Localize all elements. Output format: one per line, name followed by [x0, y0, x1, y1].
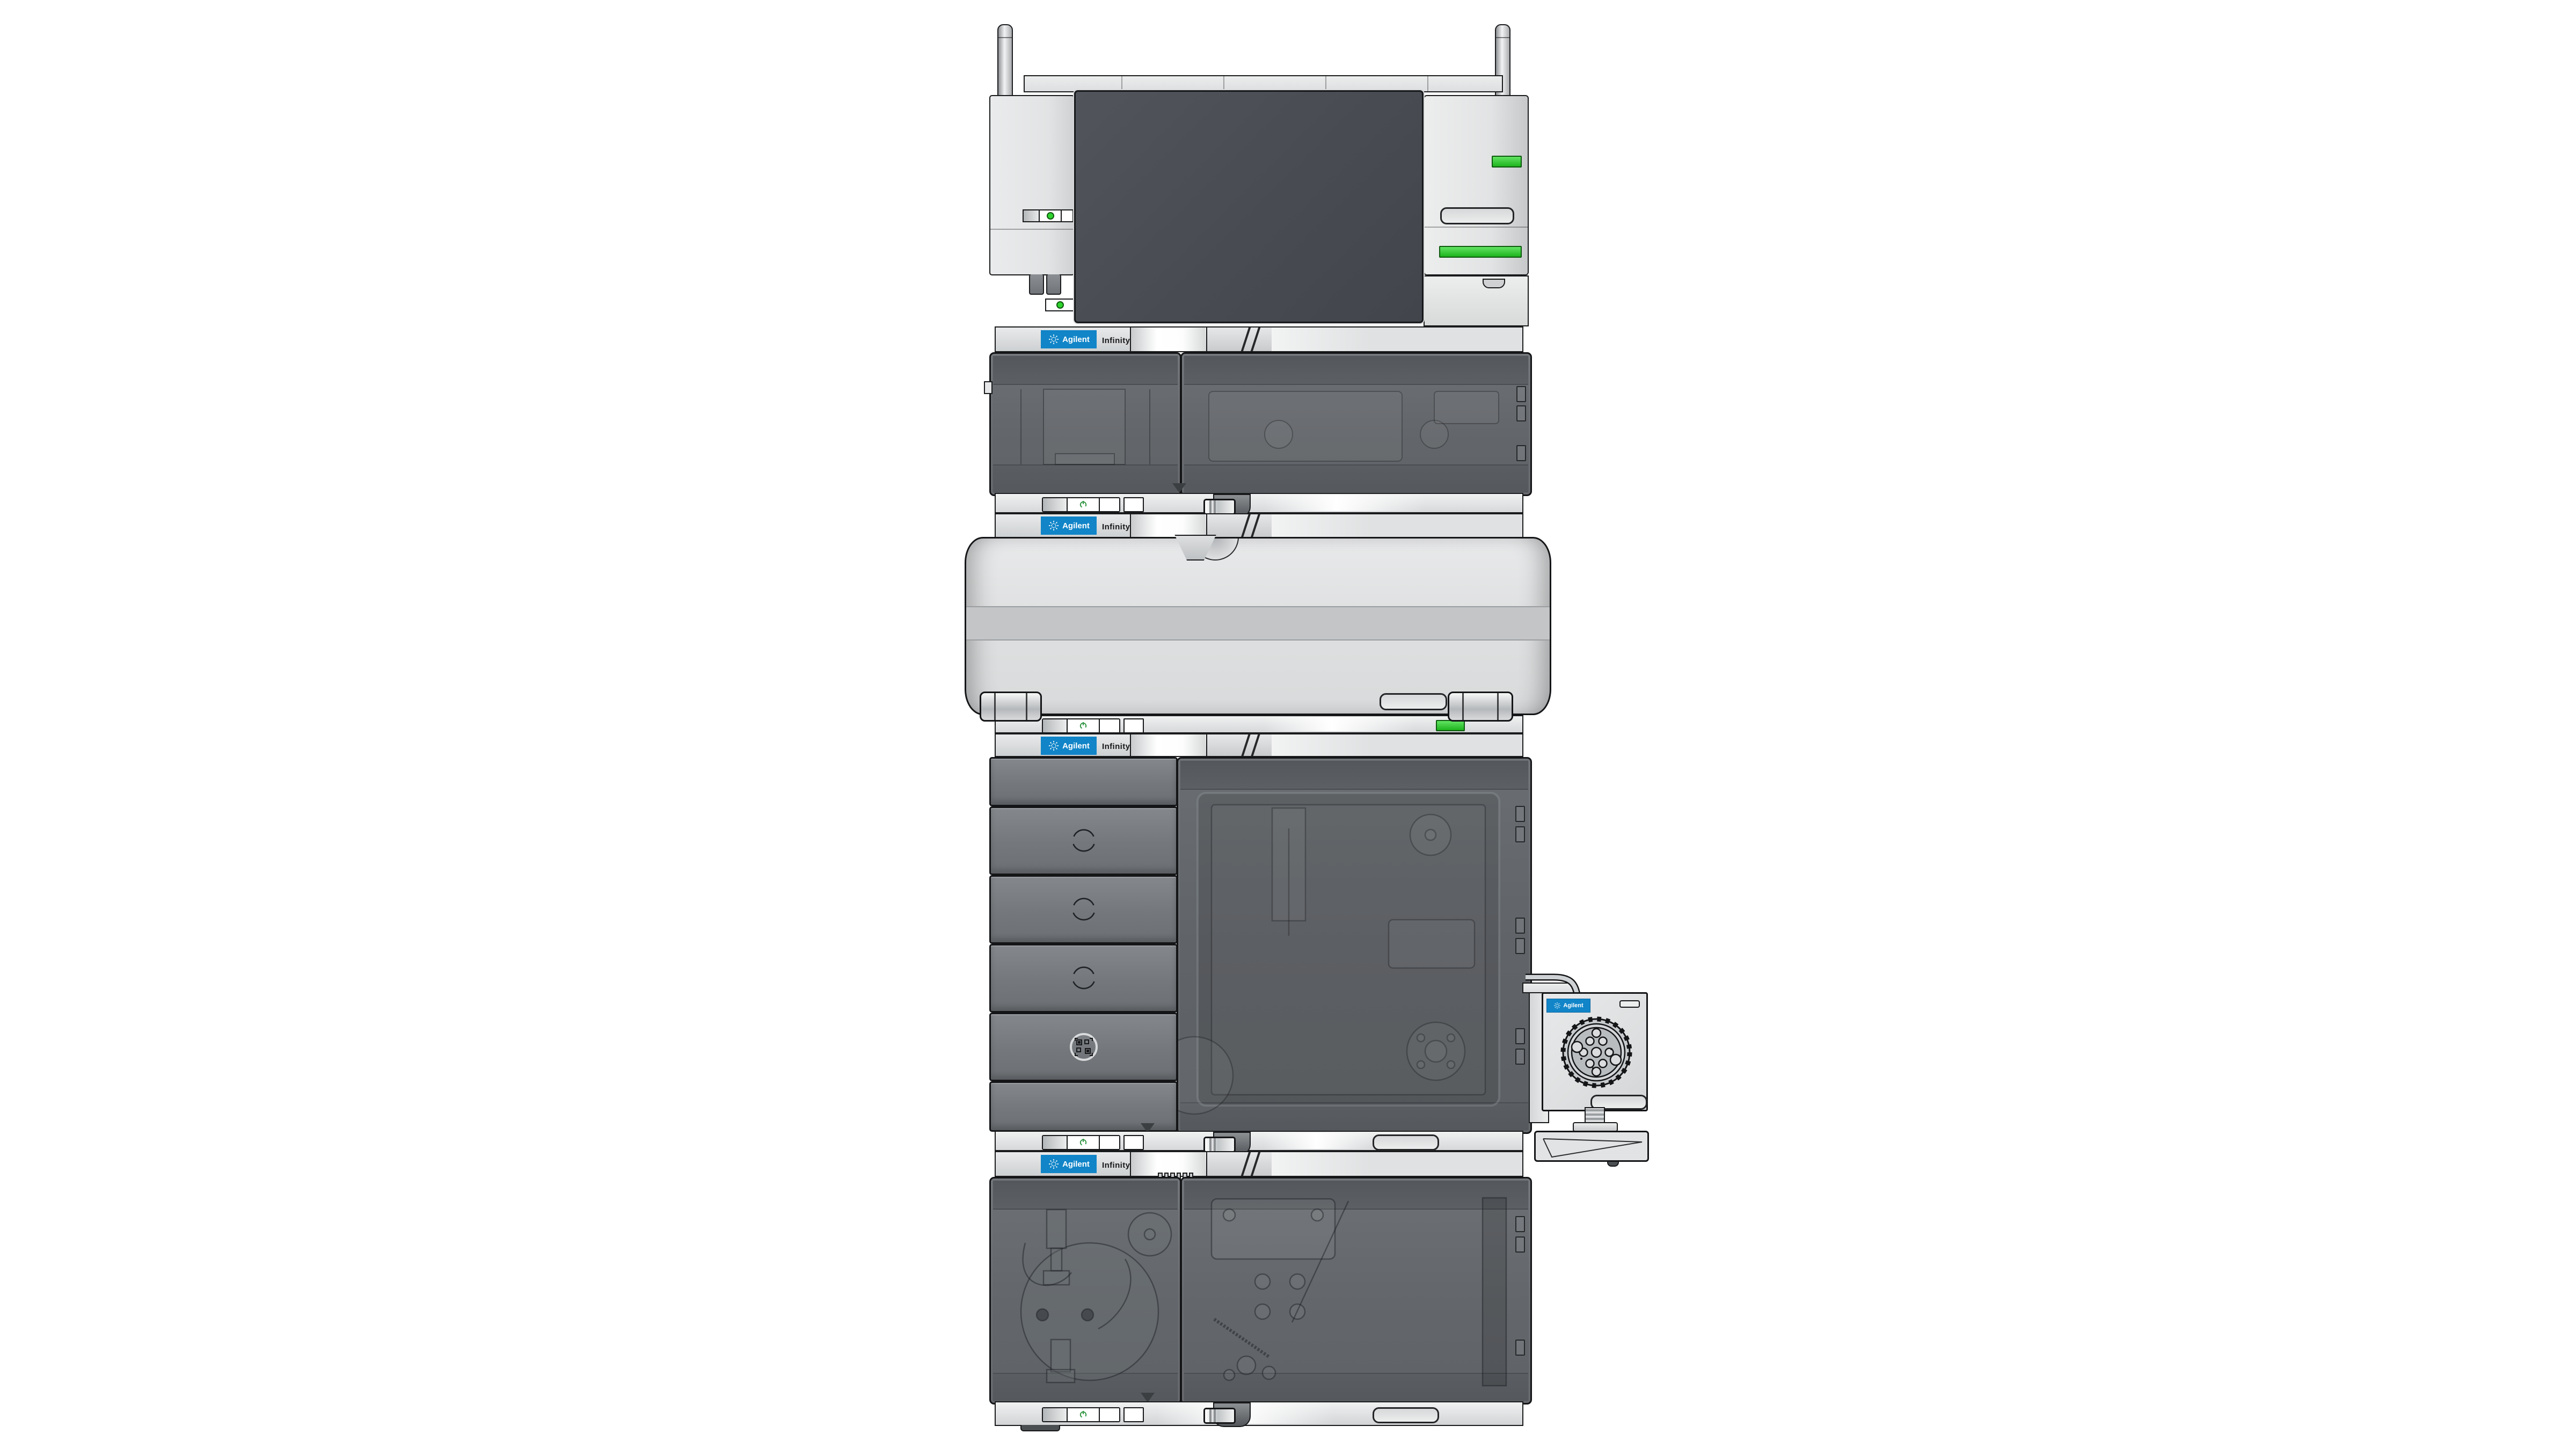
recessed-slot [1380, 693, 1447, 710]
valve-module-body: Agilent [1542, 992, 1648, 1111]
agilent-badge: Agilent [1041, 516, 1097, 535]
sampler-module [989, 757, 1529, 1131]
brand-label: Agilent [1062, 1160, 1090, 1169]
sampler-drawer-qr [989, 1013, 1178, 1081]
sampler-drawer-3 [989, 944, 1178, 1013]
module-header-strip-1: Agilent Infinity III [995, 326, 1523, 352]
drawer-pull-ring-icon [1071, 828, 1096, 853]
power-strip-cell [1123, 1407, 1144, 1422]
agilent-badge-small: Agilent [1546, 999, 1590, 1013]
module-power-strip-4 [995, 1131, 1523, 1151]
solvent-mid-band [966, 606, 1550, 641]
left-clip-tab [984, 381, 993, 394]
stand-base [1534, 1131, 1649, 1162]
status-led-green [1047, 212, 1054, 220]
agilent-badge: Agilent [1041, 737, 1097, 755]
dock-right-cabinet [1424, 95, 1529, 275]
base-exhaust-tab [1020, 1425, 1060, 1431]
pump-lower-left-door [989, 1177, 1181, 1405]
side-valve-module: Agilent [1522, 966, 1662, 1170]
tablet-display-screen [1074, 90, 1424, 323]
drawer-pull-ring-icon [1071, 897, 1096, 922]
pump-internals-faint [1182, 1178, 1530, 1403]
module-header-strip-2: Agilent Infinity III [995, 513, 1523, 538]
status-led-bar [1436, 720, 1465, 731]
brand-label: Agilent [1062, 741, 1090, 751]
header-right-section [1272, 1152, 1522, 1176]
dock-left-cabinet [989, 95, 1075, 275]
power-button [1042, 1135, 1120, 1150]
stand-foot [1607, 1162, 1619, 1167]
brand-label: Agilent [1062, 335, 1090, 344]
module-power-strip-2 [995, 493, 1523, 513]
valve-wheel-icon [1559, 1015, 1634, 1090]
slash-vent-panel [1206, 328, 1273, 351]
sampler-internals-faint [1178, 759, 1530, 1132]
power-button [1042, 497, 1120, 512]
valve-vent-slot [1619, 1000, 1640, 1008]
pump-lower-right-door [1180, 1177, 1532, 1405]
power-icon [1079, 500, 1088, 509]
display-dock-module [989, 0, 1529, 326]
pump-internals-faint [991, 1178, 1180, 1403]
power-icon [1079, 722, 1088, 730]
power-strip-cell [1123, 718, 1144, 733]
module-power-strip-3 [995, 715, 1523, 733]
instrument-stack: Agilent Infinity III [989, 0, 1529, 1448]
slash-vent-panel [1206, 1152, 1273, 1176]
sampler-drawer-2 [989, 875, 1178, 944]
power-button [1042, 718, 1120, 733]
dock-left-status-strip [1023, 209, 1074, 222]
agilent-starburst-icon [1048, 520, 1060, 532]
slash-vent-panel [1206, 514, 1273, 537]
agilent-starburst-icon [1553, 1002, 1561, 1009]
sampler-drawer-blank-top [989, 757, 1178, 806]
solvent-module [965, 537, 1551, 715]
power-icon [1079, 1410, 1088, 1419]
power-button [1042, 1407, 1120, 1422]
agilent-badge: Agilent [1041, 330, 1097, 348]
agilent-starburst-icon [1048, 740, 1060, 752]
status-led-green [1056, 301, 1064, 309]
pump-internals-faint [1182, 354, 1530, 494]
sampler-drawer-1 [989, 806, 1178, 875]
header-right-section [1272, 734, 1522, 756]
recessed-slot [1373, 1134, 1439, 1151]
module-header-strip-4: Agilent Infinity III [995, 1151, 1523, 1177]
module-header-strip-3: Agilent Infinity III [995, 733, 1523, 757]
agilent-starburst-icon [1048, 1158, 1060, 1170]
dock-foot [1029, 274, 1044, 295]
recessed-handle-slot [1440, 207, 1514, 224]
dock-right-base [1424, 275, 1529, 326]
pump-internals-faint [991, 354, 1180, 494]
power-strip-cell [1123, 497, 1144, 512]
power-icon [1079, 1138, 1088, 1147]
power-strip-cell [1123, 1135, 1144, 1150]
pump-module-upper [989, 352, 1529, 493]
pump-module-lower [989, 1177, 1529, 1401]
status-led-bar-short [1492, 156, 1522, 168]
pump-upper-left-door [989, 352, 1181, 496]
agilent-badge: Agilent [1041, 1155, 1097, 1173]
sampler-drawer-column [989, 757, 1174, 1131]
brand-label: Agilent [1563, 1002, 1583, 1009]
stand-base-detail [1536, 1132, 1651, 1163]
header-right-section [1272, 328, 1522, 351]
illustration-canvas: Agilent Infinity III [0, 0, 2576, 1448]
header-white-panel [1131, 514, 1205, 537]
wifi-antenna-left-icon [997, 24, 1013, 98]
recessed-slot [1373, 1407, 1439, 1423]
status-led-bar-long [1439, 246, 1522, 258]
pump-upper-right-door [1180, 352, 1532, 496]
dock-lower-status-strip [1045, 299, 1075, 311]
slash-vent-panel [1206, 734, 1273, 756]
header-white-panel [1131, 734, 1205, 756]
sampler-window-door [1177, 757, 1532, 1134]
base-power-strip [995, 1401, 1523, 1426]
drawer-pull-ring-icon [1071, 966, 1096, 991]
dock-foot [1046, 274, 1061, 295]
agilent-starburst-icon [1048, 333, 1060, 345]
header-right-section [1272, 514, 1522, 537]
qr-code-icon [1069, 1032, 1099, 1062]
header-white-panel [1131, 328, 1205, 351]
solvent-handle-right [1448, 692, 1513, 722]
purge-valve-knob [1213, 1402, 1251, 1427]
brand-label: Agilent [1062, 521, 1090, 530]
solvent-handle-left [980, 692, 1042, 722]
